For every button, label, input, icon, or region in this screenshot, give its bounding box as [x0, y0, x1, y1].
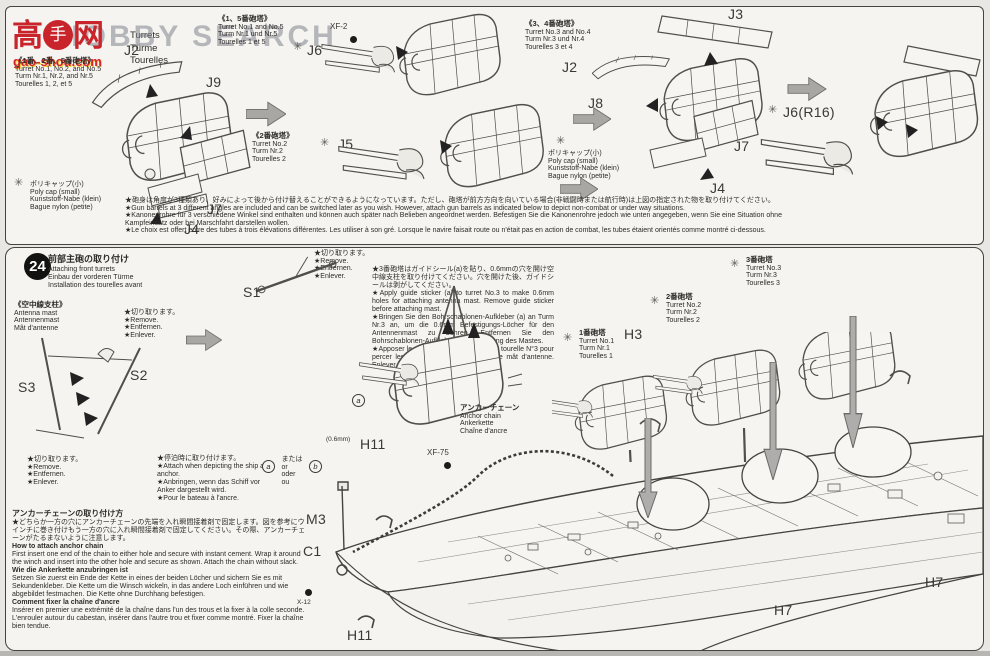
- sprue-icon: ✳: [768, 105, 777, 116]
- part-label-j9: J9: [206, 74, 221, 90]
- howto-body-fr: Insérer en premier une extrémité de la c…: [12, 607, 306, 631]
- paint-label-x12: X-12: [297, 599, 311, 606]
- turret2-jp: 2番砲塔: [666, 293, 736, 302]
- hole-b-marker: b: [309, 460, 322, 473]
- sprue-icon: ✳: [650, 296, 659, 307]
- assembly-arrow: [186, 328, 222, 352]
- assembly-arrow: [246, 100, 286, 128]
- anchor-chain-label: アンカーチェーン Anchor chain Ankerkette Chaîne …: [460, 404, 540, 435]
- polycap-note-right: ポリキャップ(小) Poly cap (small) Kunststoff-Na…: [548, 150, 619, 180]
- part-label-m3: M3: [306, 511, 326, 527]
- part-label-h7: H7: [925, 574, 944, 590]
- howto-title-en: How to attach anchor chain: [12, 543, 306, 551]
- howto-title-de: Wie die Ankerkette anzubringen ist: [12, 567, 306, 575]
- fist-icon: 手: [43, 20, 73, 50]
- turret2-label: 2番砲塔 Turret No.2 Turm Nr.2 Tourelles 2: [666, 293, 736, 324]
- remove-note-flag: ★切り取ります。 ★Remove. ★Entfernen. ★Enlever.: [27, 456, 82, 486]
- polycap-note-left: ポリキャップ(小) Poly cap (small) Kunststoff-Na…: [30, 181, 101, 211]
- s1-spar-illustration: [250, 253, 350, 299]
- placement-arrow: [763, 362, 783, 480]
- antenna-heading-jp: 《空中線支柱》: [14, 301, 124, 310]
- gaoshou-watermark-logo: 高手网: [12, 20, 104, 51]
- hole-a-marker: a: [262, 460, 275, 473]
- antenna-heading-langs: Antenna mast Antennenmast Mât d'antenne: [14, 310, 124, 333]
- hole-size-label: (0.6mm): [326, 436, 350, 443]
- part-label-h7: H7: [774, 602, 793, 618]
- turret3-langs: Turret No.3 Turm Nr.3 Tourelles 3: [746, 265, 816, 288]
- anchor-chain-langs: Anchor chain Ankerkette Chaîne d'ancre: [460, 413, 540, 436]
- sprue-icon: ✳: [730, 259, 739, 270]
- part-label-j7: J7: [734, 138, 749, 154]
- howto-title-fr: Comment fixer la chaîne d'ancre: [12, 599, 306, 607]
- placement-arrow: [843, 316, 863, 448]
- part-label-j4: J4: [710, 180, 725, 196]
- anchor-chain-jp: アンカーチェーン: [460, 404, 540, 413]
- paint-dot-x12: [305, 589, 312, 596]
- part-label-s3: S3: [18, 379, 36, 395]
- turret3-jp: 3番砲塔: [746, 256, 816, 265]
- part-label-j3: J3: [728, 6, 743, 22]
- step-title-jp: 前部主砲の取り付け: [48, 255, 129, 264]
- scan-edge-strip: [0, 651, 990, 656]
- turret-2-assembled-illustration: [322, 96, 557, 191]
- part-label-s2: S2: [130, 367, 148, 383]
- part-label-s1: S1: [243, 284, 261, 300]
- watermark-char-left: 高: [12, 18, 43, 53]
- step-number-badge: 24: [24, 253, 51, 280]
- instruction-sheet-page: Turrets Türme Tourelles HOBBY SEARCH 高手网…: [0, 0, 990, 656]
- howto-body-de: Setzen Sie zuerst ein Ende der Kette in …: [12, 575, 306, 599]
- turret2-langs: Turret No.2 Turm Nr.2 Tourelles 2: [666, 302, 736, 325]
- or-words: または or oder ou: [281, 456, 302, 486]
- paint-dot-xf75: [444, 462, 451, 469]
- howto-body-jp: ★どちらか一方の穴にアンカーチェーンの先端を入れ瞬間接着剤で固定します。図を参考…: [12, 519, 306, 543]
- at-anchor-note: ★停泊時に取り付けます。 ★Attach when depicting the …: [157, 455, 267, 503]
- hole-choice-note: a または or oder ou b: [262, 456, 322, 486]
- part-label-h11: H11: [360, 436, 386, 452]
- gun-barrel-note: ★砲身は角度が3種類あり、好みによって後から付け替えることができるようになってい…: [125, 197, 978, 235]
- placement-arrow: [638, 418, 658, 518]
- part-label-j2: J2: [562, 59, 577, 75]
- assembly-arrow: [787, 76, 827, 102]
- sprue-icon: ✳: [293, 42, 302, 53]
- howto-title-jp: アンカーチェーンの取り付け方: [12, 510, 306, 519]
- paint-label-xf75: XF-75: [427, 448, 449, 457]
- watermark-char-right: 网: [73, 18, 104, 53]
- anchor-chain-howto: アンカーチェーンの取り付け方 ★どちらか一方の穴にアンカーチェーンの先端を入れ瞬…: [12, 510, 306, 631]
- step-title-langs: Attaching front turrets Einbau der vorde…: [48, 266, 142, 290]
- part-label-j8: J8: [588, 95, 603, 111]
- howto-body-en: First insert one end of the chain to eit…: [12, 551, 306, 567]
- part-label-j2: J2: [124, 42, 139, 58]
- sprue-icon: ✳: [14, 178, 23, 189]
- sprue-icon: ✳: [556, 136, 565, 147]
- antenna-mast-heading: 《空中線支柱》 Antenna mast Antennenmast Mât d'…: [14, 301, 124, 332]
- part-label-h11: H11: [347, 627, 373, 643]
- turret-34-assembled-illustration: [858, 38, 988, 168]
- turret3-label: 3番砲塔 Turret No.3 Turm Nr.3 Tourelles 3: [746, 256, 816, 287]
- part-label-c1: C1: [303, 543, 322, 559]
- barrels-j6r16-illustration: [755, 118, 873, 184]
- turret-15-assembled-illustration: [318, 8, 518, 100]
